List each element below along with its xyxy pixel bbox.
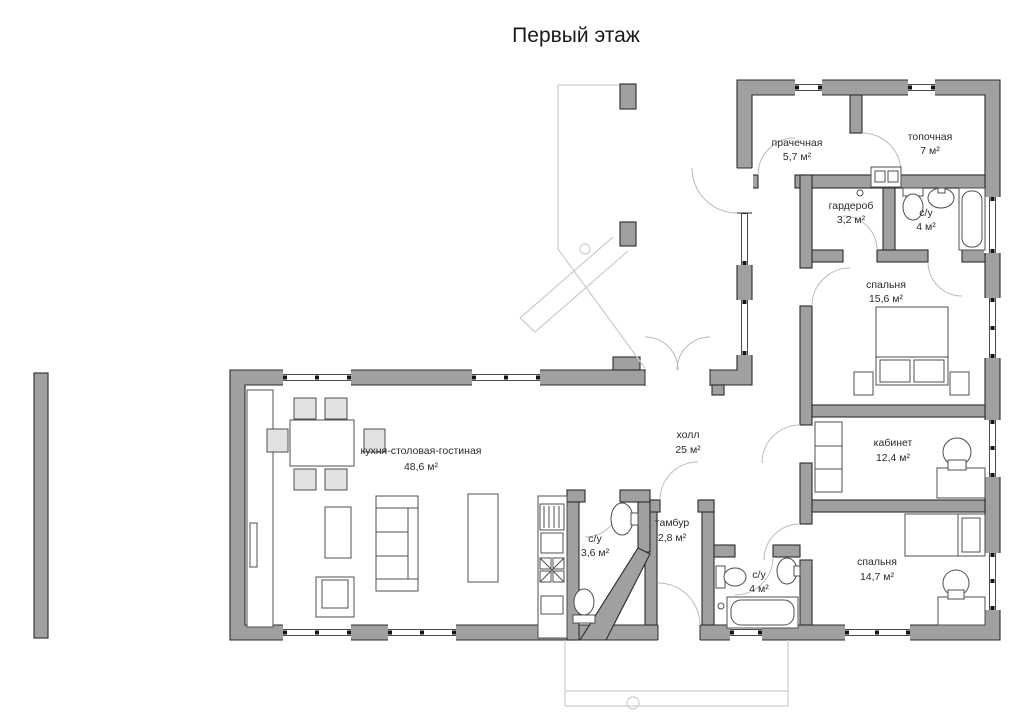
svg-text:спальня: спальня bbox=[866, 279, 906, 291]
bedroom-1-door bbox=[812, 268, 850, 306]
front-door bbox=[658, 583, 700, 641]
bathtub bbox=[959, 188, 985, 250]
svg-text:тамбур: тамбур bbox=[655, 517, 690, 529]
room-labels: прачечная5,7 м² топочная7 м² гардероб3,2… bbox=[361, 131, 953, 595]
svg-text:кухня-столовая-гостиная: кухня-столовая-гостиная bbox=[361, 445, 482, 457]
tv-console bbox=[247, 390, 273, 627]
svg-text:5,7 м²: 5,7 м² bbox=[783, 151, 812, 163]
kitchen-island bbox=[468, 494, 498, 582]
sofa bbox=[376, 496, 418, 591]
room-label-laundry: прачечная5,7 м² bbox=[772, 137, 823, 163]
office-door bbox=[762, 425, 800, 463]
room-label-hall: холл25 м² bbox=[675, 429, 701, 456]
wall-fixture bbox=[857, 190, 863, 196]
north-porch bbox=[520, 84, 645, 368]
vestibule-door bbox=[660, 462, 698, 500]
porch-post bbox=[620, 222, 636, 246]
svg-text:холл: холл bbox=[677, 429, 700, 441]
boiler-room-door bbox=[862, 133, 901, 172]
svg-text:с/у: с/у bbox=[919, 207, 933, 219]
kitchen-counter bbox=[538, 496, 567, 638]
room-label-boiler-room: топочная7 м² bbox=[908, 131, 953, 157]
bathroom-top-door bbox=[928, 262, 962, 296]
floor-plan-page: Первый этаж bbox=[0, 0, 1024, 724]
nightstand bbox=[854, 372, 873, 395]
window bbox=[984, 553, 1001, 610]
window bbox=[845, 624, 910, 641]
svg-text:2,8 м²: 2,8 м² bbox=[658, 532, 687, 544]
bathtub bbox=[727, 597, 798, 628]
floor-plan-drawing: Первый этаж bbox=[0, 0, 1024, 724]
washer-unit bbox=[871, 167, 901, 187]
pillow bbox=[914, 360, 944, 382]
svg-text:3,6 м²: 3,6 м² bbox=[581, 547, 610, 559]
room-label-wardrobe: гардероб3,2 м² bbox=[829, 200, 874, 226]
window bbox=[283, 369, 351, 386]
svg-text:12,4 м²: 12,4 м² bbox=[876, 452, 911, 464]
svg-text:4 м²: 4 м² bbox=[749, 583, 769, 595]
window bbox=[283, 624, 351, 641]
porch-post bbox=[620, 84, 636, 109]
room-label-bathroom-top: с/у4 м² bbox=[916, 207, 936, 233]
nightstand bbox=[950, 372, 969, 395]
laundry-exterior-door bbox=[692, 168, 753, 213]
window bbox=[984, 420, 1001, 477]
desk bbox=[938, 597, 985, 625]
floor-drain bbox=[718, 603, 724, 609]
window bbox=[388, 624, 456, 641]
room-label-bedroom-1: спальня15,6 м² bbox=[866, 279, 906, 305]
window bbox=[736, 300, 753, 355]
svg-text:топочная: топочная bbox=[908, 131, 953, 143]
window bbox=[472, 369, 540, 386]
svg-text:прачечная: прачечная bbox=[772, 137, 823, 149]
sink bbox=[777, 558, 800, 584]
svg-text:с/у: с/у bbox=[752, 569, 766, 581]
svg-text:4 м²: 4 м² bbox=[916, 221, 936, 233]
svg-text:14,7 м²: 14,7 м² bbox=[860, 571, 895, 583]
furniture-bedroom-1 bbox=[854, 307, 969, 395]
dining-table bbox=[290, 420, 354, 466]
room-label-bedroom-2: спальня14,7 м² bbox=[857, 556, 897, 583]
window bbox=[736, 210, 753, 265]
window bbox=[908, 79, 935, 96]
window bbox=[984, 298, 1001, 358]
desk-chair bbox=[943, 438, 971, 470]
fence-wall bbox=[34, 373, 48, 638]
sink bbox=[928, 188, 954, 208]
armchair bbox=[316, 577, 354, 617]
room-label-bathroom-bottom: с/у4 м² bbox=[749, 569, 769, 595]
window bbox=[795, 79, 822, 96]
entrance-double-door bbox=[645, 337, 710, 387]
furniture-living bbox=[247, 390, 567, 638]
pillow bbox=[962, 518, 980, 552]
svg-text:кабинет: кабинет bbox=[874, 437, 913, 449]
sink bbox=[611, 503, 638, 535]
room-label-kitchen-living: кухня-столовая-гостиная48,6 м² bbox=[361, 445, 482, 473]
window bbox=[984, 197, 1001, 253]
toilet bbox=[573, 589, 595, 623]
svg-text:48,6 м²: 48,6 м² bbox=[404, 461, 439, 473]
svg-text:с/у: с/у bbox=[588, 533, 602, 545]
dining-set bbox=[267, 398, 385, 490]
bookcase bbox=[815, 422, 842, 492]
svg-text:3,2 м²: 3,2 м² bbox=[837, 214, 866, 226]
room-label-vestibule: тамбур2,8 м² bbox=[655, 517, 690, 544]
svg-text:7 м²: 7 м² bbox=[920, 145, 940, 157]
page-title: Первый этаж bbox=[512, 24, 640, 47]
pillow bbox=[880, 360, 910, 382]
coffee-table bbox=[325, 507, 351, 558]
svg-text:25 м²: 25 м² bbox=[675, 444, 701, 456]
svg-text:гардероб: гардероб bbox=[829, 200, 874, 212]
furniture-bedroom-2 bbox=[905, 514, 985, 625]
toilet bbox=[716, 566, 746, 588]
desk bbox=[937, 468, 985, 498]
south-porch bbox=[565, 640, 788, 709]
svg-text:15,6 м²: 15,6 м² bbox=[869, 293, 904, 305]
svg-text:спальня: спальня bbox=[857, 556, 897, 568]
desk-chair bbox=[943, 570, 969, 599]
room-label-office: кабинет12,4 м² bbox=[874, 437, 913, 464]
